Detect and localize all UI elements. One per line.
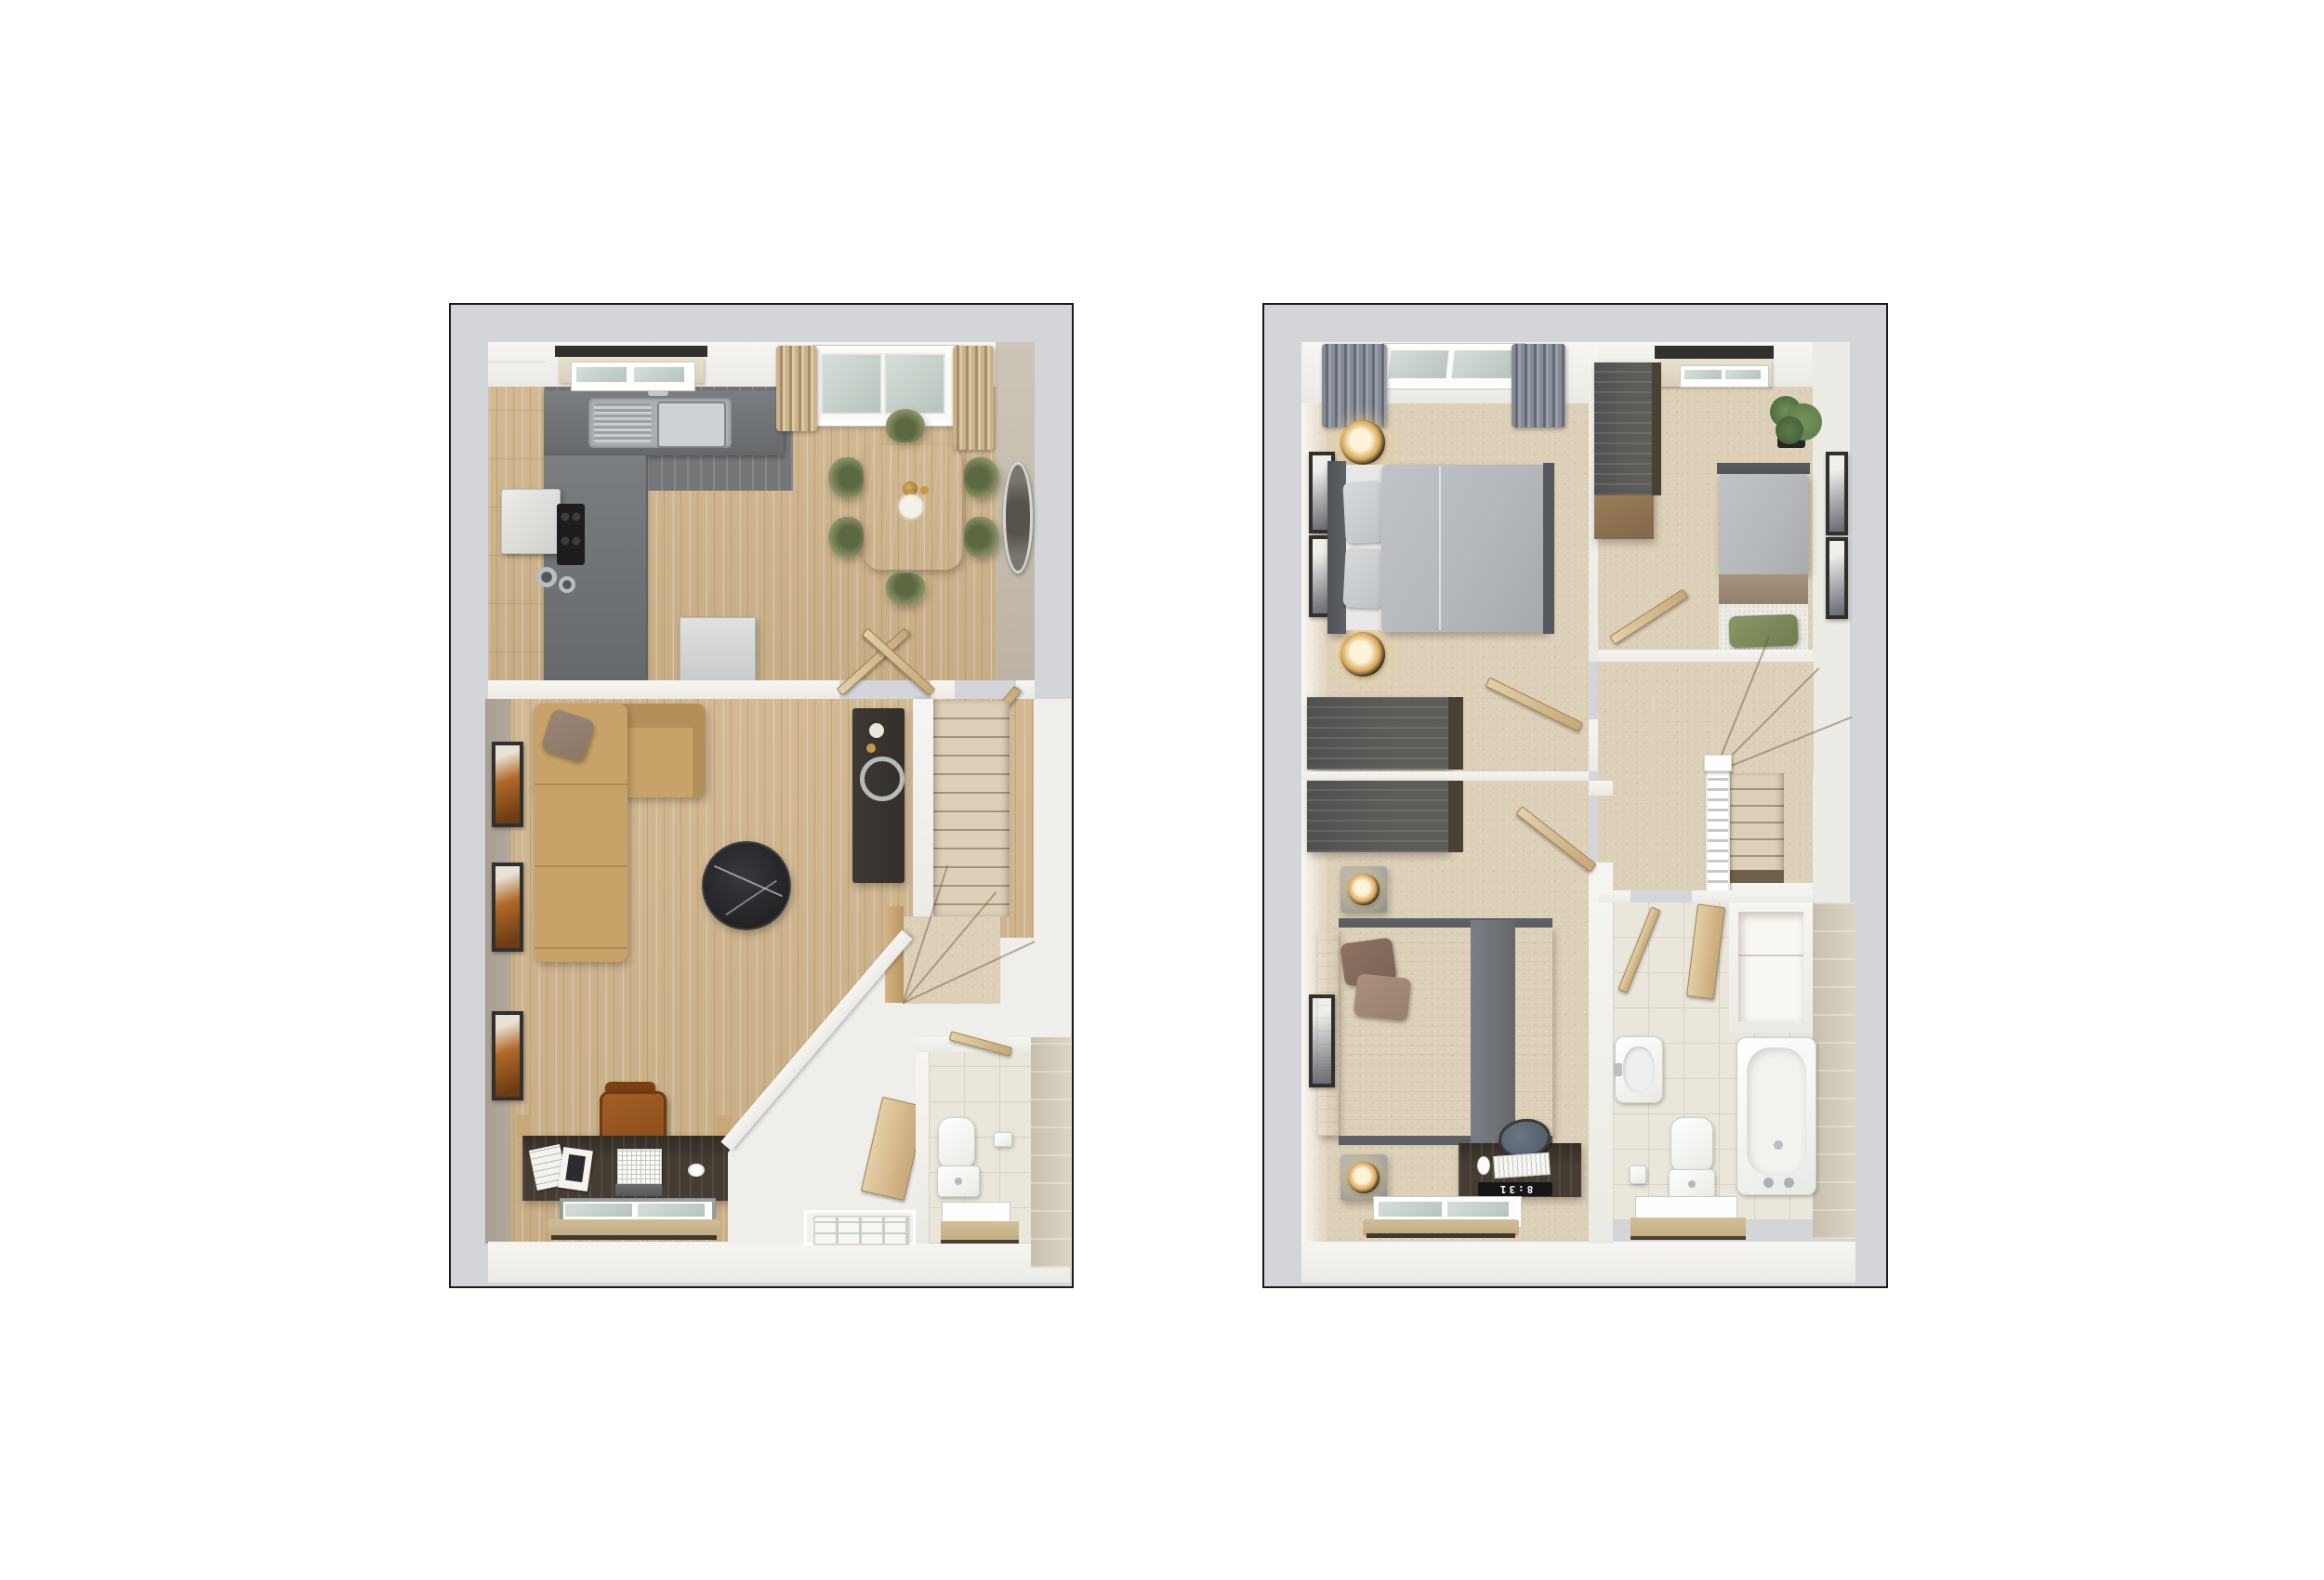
candle-gold: [866, 744, 876, 753]
dining-chair-right-lower: [964, 517, 999, 558]
wc-mat: [941, 1221, 1019, 1244]
wall-frame: [492, 742, 523, 827]
desk-side-rail: [516, 1115, 531, 1138]
hob: [557, 504, 585, 565]
fridge-unit: [501, 489, 561, 554]
dividing-wall: [488, 680, 839, 699]
bottom-wall: [1301, 1242, 1855, 1283]
mouse: [688, 1164, 705, 1177]
bathtub-inner: [1747, 1047, 1806, 1176]
bedroom2-bathroom-wall: [1589, 862, 1613, 1244]
wc-right-wall-face: [1031, 1037, 1072, 1268]
bedroom-dividing-wall: [1301, 771, 1589, 781]
bedroom3-chest: [1594, 495, 1654, 539]
bedroom3-window: [1681, 366, 1768, 387]
flush-button: [955, 1178, 962, 1185]
dining-chair-top: [886, 409, 925, 442]
french-door-pane: [821, 353, 882, 415]
wall-frame: [492, 1011, 523, 1100]
bedroom2-wardrobe: [1307, 781, 1448, 852]
bedroom3-bottom-wall: [1598, 650, 1813, 662]
dining-chair-right-upper: [964, 457, 999, 498]
bedroom2-right-wall: [1589, 781, 1613, 796]
bed2-pillow: [1353, 973, 1411, 1021]
bed3-headboard: [1717, 463, 1810, 474]
marble-vein: [725, 880, 777, 916]
first-floor-plan: 8:31: [1262, 303, 1888, 1288]
tablet: [565, 1154, 586, 1182]
toilet-lid: [938, 1117, 975, 1169]
sink-drainer: [594, 403, 652, 442]
landing-bottom-wall: [1598, 890, 1631, 902]
stair-wall-stub: [913, 699, 933, 935]
airing-cupboard: [1738, 912, 1803, 1021]
wall-frame: [1826, 537, 1848, 619]
sink-tap: [648, 390, 668, 396]
flush-button: [1688, 1180, 1696, 1188]
laptop-keyboard: [617, 1149, 662, 1184]
window-pane: [1447, 1202, 1509, 1217]
duvet-fold: [1439, 467, 1441, 630]
bed2-runner: [1471, 920, 1515, 1145]
window-pane: [634, 367, 684, 382]
wall-frame: [492, 862, 523, 952]
dresser-clock: 8:31: [1478, 1182, 1552, 1196]
stair-balustrade: [1706, 758, 1730, 892]
wc-wall-left: [916, 1052, 929, 1244]
bath-drain: [1774, 1140, 1783, 1150]
sink-basin: [657, 402, 726, 448]
desk-folder: [558, 1147, 593, 1192]
newel-post: [1704, 755, 1732, 771]
wardrobe-side-face: [1652, 362, 1661, 495]
bedroom1-window: [1383, 344, 1525, 388]
window-pane: [1725, 370, 1761, 379]
dining-chair-bottom: [886, 573, 925, 606]
bench-base: [1367, 1233, 1515, 1238]
nightstand-cube: [1340, 866, 1387, 913]
bathroom-right-wall-face: [1813, 902, 1855, 1239]
dining-curtain-right: [953, 346, 994, 450]
bedroom1-right-wall: [1589, 719, 1598, 771]
laptop-screen: [615, 1184, 662, 1196]
bed1-duvet: [1381, 465, 1549, 632]
nightstand-cube: [1340, 1154, 1387, 1201]
bedroom1-curtain-right: [1512, 344, 1565, 428]
dishwasher: [680, 617, 756, 682]
landing-bottom-wall: [1692, 890, 1813, 902]
window-pane: [1451, 350, 1513, 378]
bathroom-mat: [1631, 1218, 1746, 1240]
bed2-frame-top: [1339, 918, 1552, 928]
stair-void-shadow: [1726, 870, 1784, 883]
basin-tap: [1614, 1063, 1622, 1076]
front-door: [813, 1216, 910, 1245]
pan-1: [536, 567, 557, 587]
sofa-arm-right: [693, 704, 706, 797]
plant-foliage: [1776, 416, 1803, 444]
bedroom3-wardrobe: [1594, 362, 1654, 495]
window-pane: [638, 1204, 705, 1217]
dining-chair-left-upper: [828, 457, 864, 498]
bedside-lamp: [1340, 420, 1385, 465]
staircase-straight-flight: [933, 701, 1010, 916]
wall-frame: [1826, 452, 1848, 535]
bedroom1-curtain-left: [1322, 344, 1387, 428]
bath-tap: [1763, 1178, 1774, 1188]
marble-coffee-table: [702, 841, 791, 930]
table-flowers: [899, 494, 923, 519]
window-pane: [576, 367, 627, 382]
straight-stairs-down: [1726, 773, 1784, 874]
bed3-blanket-band: [1719, 574, 1808, 604]
console-ring: [860, 757, 905, 801]
kitchen-sink: [588, 398, 732, 448]
toilet-cistern: [1669, 1169, 1715, 1199]
basin-bowl: [1623, 1047, 1655, 1093]
bath-tap: [1784, 1178, 1794, 1188]
bottom-wall: [488, 1242, 1070, 1283]
bed1-pillow: [1342, 481, 1384, 544]
dining-curtain-left: [776, 346, 817, 431]
bed2-headboard: [1318, 929, 1339, 1136]
french-doors: [813, 346, 958, 426]
window-pane: [1388, 350, 1448, 378]
wardrobe-side-face: [1448, 781, 1463, 852]
pan-2: [559, 576, 575, 593]
bedside-lamp: [1340, 632, 1385, 677]
bedroom3-window-pelmet: [1655, 346, 1774, 359]
nightstand-lamp: [1348, 874, 1380, 905]
bed3-duvet: [1719, 474, 1808, 574]
wc-wall: [916, 1037, 953, 1052]
ground-floor-plan: [449, 303, 1074, 1288]
dining-chair-left-lower: [828, 517, 864, 558]
toilet-cistern: [937, 1165, 980, 1197]
bedroom1-wardrobe: [1307, 697, 1448, 770]
dresser-keyboard: [1493, 1152, 1551, 1178]
dresser-mouse: [1477, 1156, 1490, 1175]
french-door-pane: [884, 353, 945, 415]
window-pane: [1684, 370, 1722, 379]
basin: [1615, 1036, 1663, 1103]
candle-cream: [869, 723, 884, 738]
sink-window-pelmet: [555, 346, 707, 357]
round-wall-mirror: [1003, 462, 1033, 573]
wardrobe-side-face: [1448, 697, 1463, 770]
window-pane: [1379, 1202, 1442, 1217]
bed1-foot-rail: [1543, 463, 1554, 634]
nightstand-lamp: [1348, 1162, 1380, 1193]
window-pane: [565, 1204, 632, 1217]
floor-plans-canvas: 8:31: [0, 0, 2324, 1580]
staircase-winder: [904, 916, 1000, 1004]
hall-right-wall-face: [1034, 699, 1071, 1037]
toilet-roll-holder: [1630, 1165, 1646, 1184]
bed1-pillow: [1342, 547, 1384, 609]
sink-window: [572, 362, 694, 390]
bathtub: [1736, 1037, 1816, 1195]
bench-base: [551, 1235, 717, 1240]
media-console: [852, 708, 905, 883]
toilet-roll-holder: [994, 1132, 1012, 1147]
toilet-lid: [1670, 1117, 1713, 1173]
table-candle: [920, 486, 929, 494]
cupboard-shelf: [1738, 955, 1803, 956]
bed3-green-pillow: [1728, 614, 1798, 649]
